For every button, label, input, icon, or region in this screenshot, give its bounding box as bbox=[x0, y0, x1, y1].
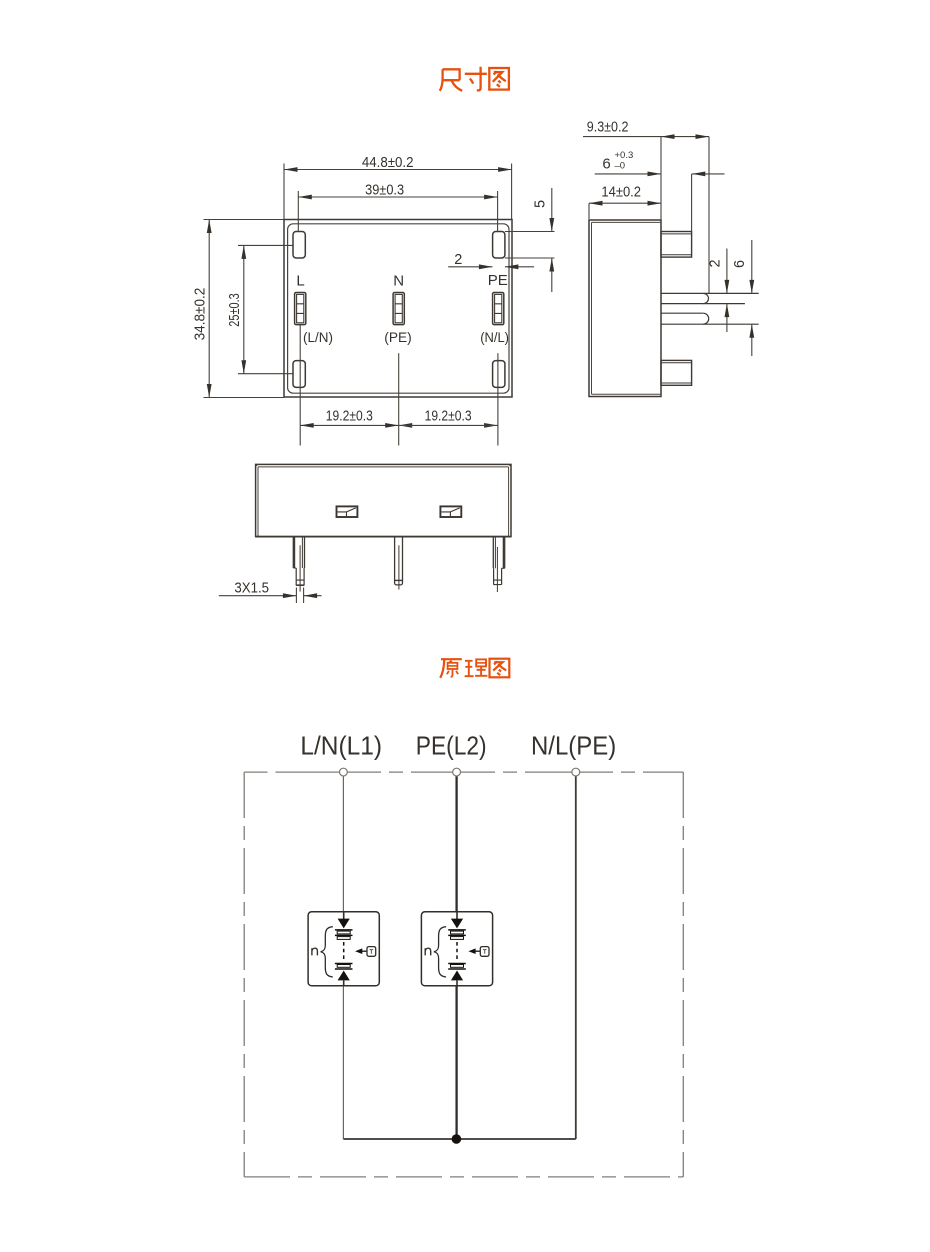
svg-text:34.8±0.2: 34.8±0.2 bbox=[193, 288, 209, 341]
svg-text:3X1.5: 3X1.5 bbox=[234, 581, 269, 597]
svg-text:19.2±0.3: 19.2±0.3 bbox=[425, 409, 472, 425]
svg-text:2: 2 bbox=[708, 259, 724, 267]
svg-text:L/N(L1): L/N(L1) bbox=[300, 731, 382, 761]
svg-text:PE: PE bbox=[488, 272, 508, 289]
svg-text:(L/N): (L/N) bbox=[303, 329, 333, 345]
svg-text:39±0.3: 39±0.3 bbox=[365, 183, 404, 199]
svg-text:6: 6 bbox=[732, 260, 748, 268]
svg-text:44.8±0.2: 44.8±0.2 bbox=[362, 155, 414, 171]
svg-text:L: L bbox=[296, 273, 304, 290]
svg-text:5: 5 bbox=[533, 200, 549, 208]
svg-text:(N/L): (N/L) bbox=[480, 329, 509, 345]
svg-text:N: N bbox=[393, 273, 404, 290]
svg-text:+0.3: +0.3 bbox=[615, 150, 634, 161]
svg-text:9.3±0.2: 9.3±0.2 bbox=[587, 120, 629, 136]
svg-text:N/L(PE): N/L(PE) bbox=[531, 731, 616, 761]
svg-text:PE(L2): PE(L2) bbox=[416, 731, 487, 761]
svg-text:2: 2 bbox=[454, 252, 462, 268]
svg-text:–0: –0 bbox=[615, 161, 626, 172]
svg-text:25±0.3: 25±0.3 bbox=[227, 293, 243, 326]
svg-text:14±0.2: 14±0.2 bbox=[601, 185, 641, 201]
svg-text:(PE): (PE) bbox=[384, 329, 411, 345]
svg-text:19.2±0.3: 19.2±0.3 bbox=[326, 409, 373, 425]
svg-text:6: 6 bbox=[602, 156, 610, 173]
